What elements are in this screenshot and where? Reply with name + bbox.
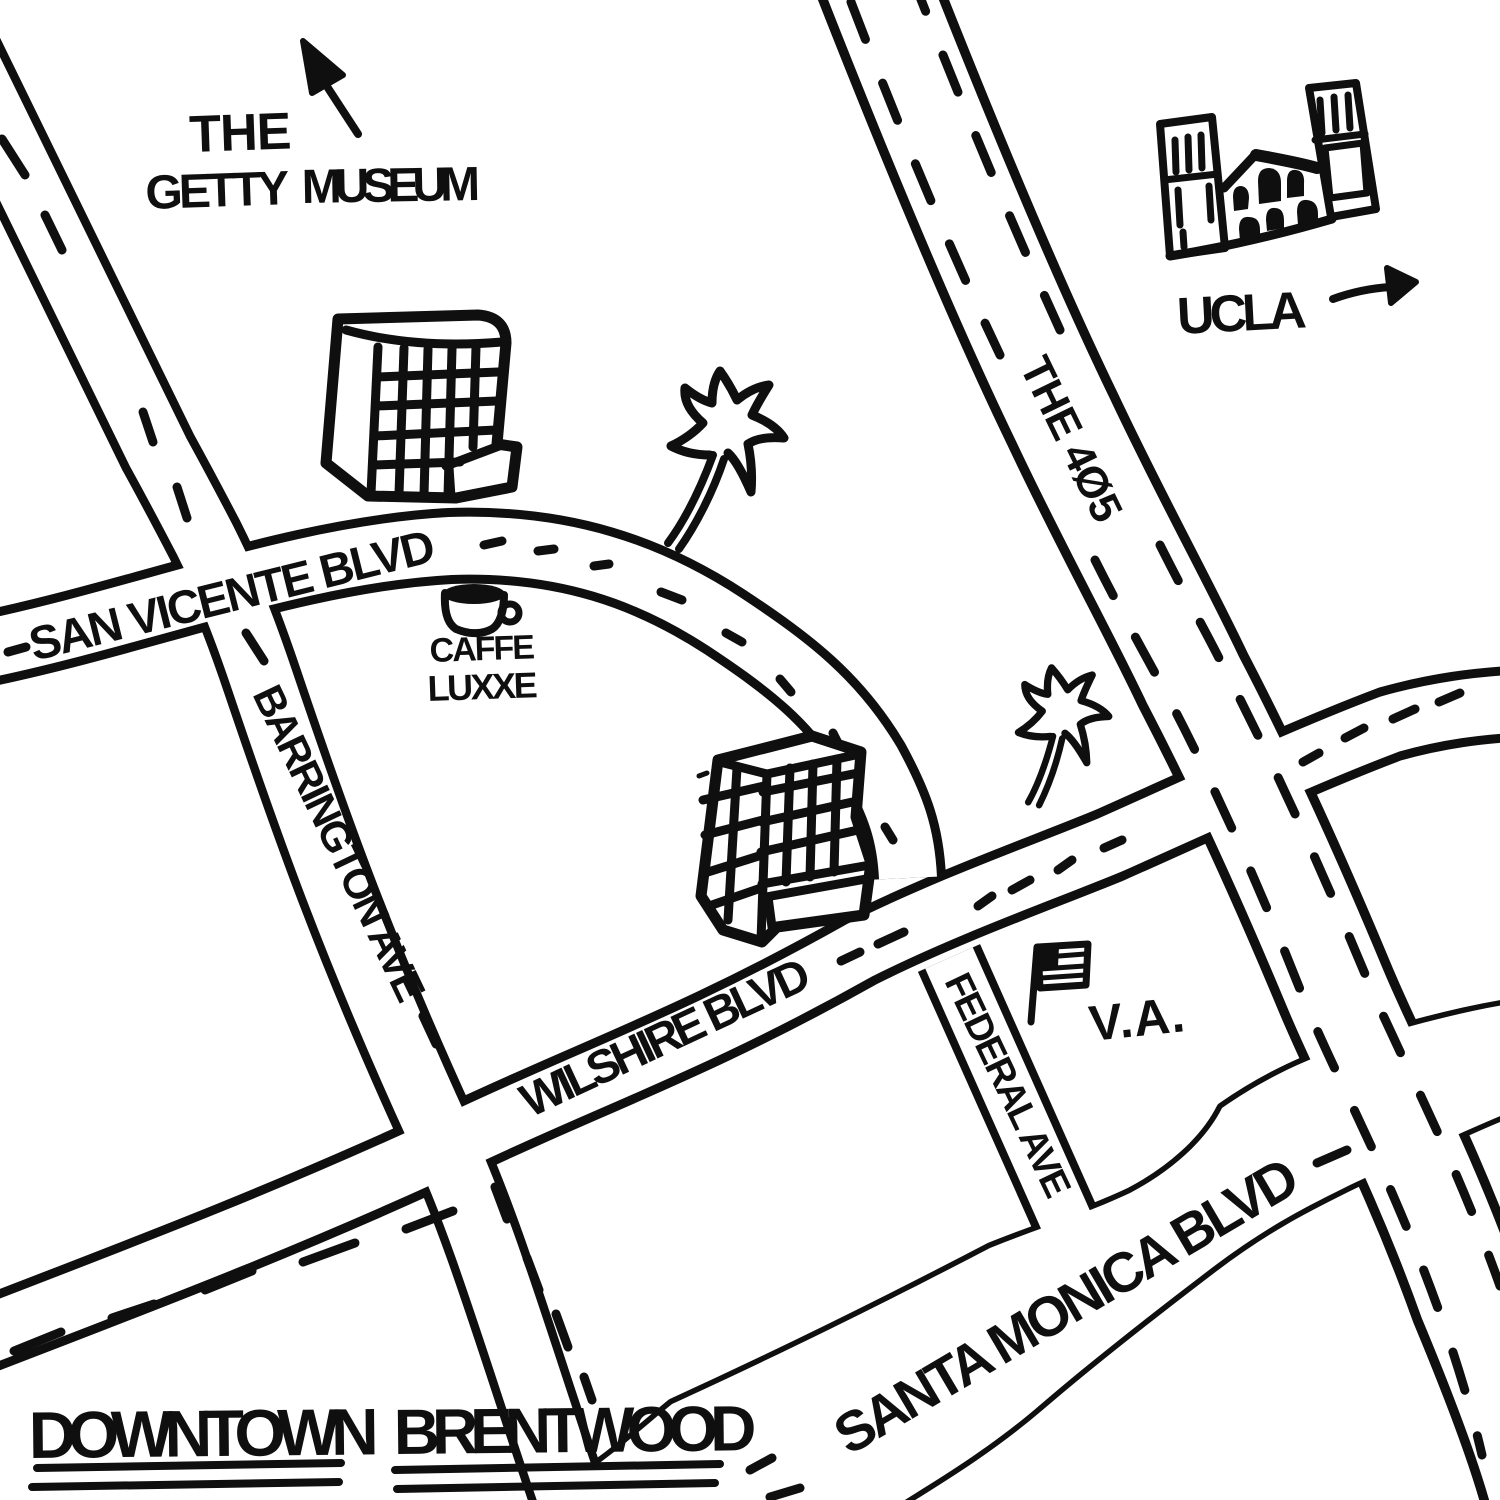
svg-text:V.A.: V.A. (1086, 986, 1188, 1052)
svg-text:CAFFE: CAFFE (429, 628, 535, 670)
svg-text:LUXXE: LUXXE (427, 664, 537, 709)
svg-text:BRENTWOOD: BRENTWOOD (393, 1392, 754, 1468)
svg-text:THE: THE (188, 103, 291, 164)
svg-text:MUSEUM: MUSEUM (301, 158, 477, 214)
svg-text:GETTY: GETTY (145, 162, 291, 220)
svg-text:UCLA: UCLA (1176, 281, 1308, 346)
